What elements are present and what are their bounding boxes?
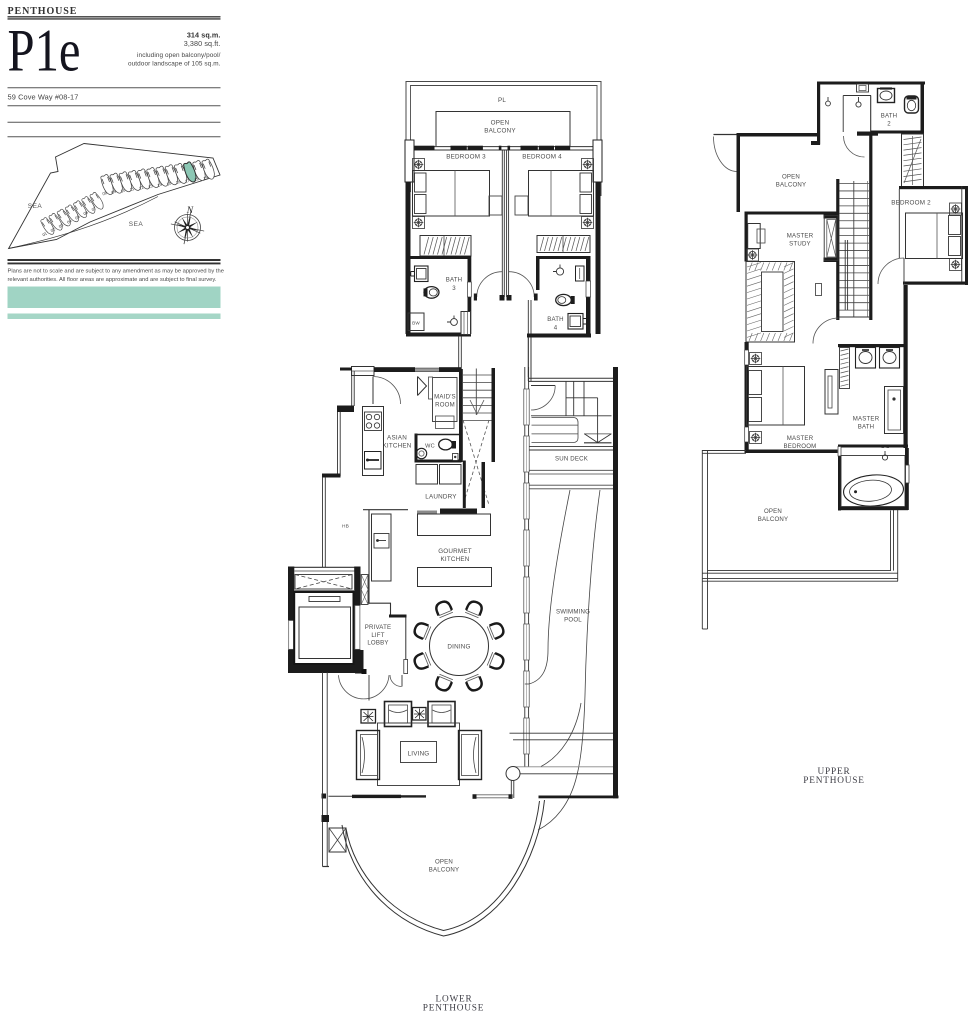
svg-text:ASIAN: ASIAN (387, 435, 407, 442)
svg-text:GOURMET: GOURMET (438, 548, 472, 555)
svg-text:59 Cove Way #08-17: 59 Cove Way #08-17 (8, 93, 79, 102)
svg-text:PENTHOUSE: PENTHOUSE (803, 776, 864, 786)
svg-text:3,380 sq.ft.: 3,380 sq.ft. (184, 39, 221, 48)
svg-text:MASTER: MASTER (853, 416, 880, 423)
svg-text:KITCHEN: KITCHEN (382, 443, 411, 450)
svg-text:OPEN: OPEN (435, 859, 453, 866)
svg-text:LOBBY: LOBBY (367, 640, 388, 647)
svg-text:MASTER: MASTER (787, 435, 814, 442)
svg-text:LAUNDRY: LAUNDRY (425, 494, 457, 501)
svg-text:relevant authorities. All floo: relevant authorities. All floor areas ar… (8, 277, 217, 283)
svg-text:BALCONY: BALCONY (484, 128, 516, 135)
svg-text:BW: BW (412, 321, 420, 326)
svg-text:BATH: BATH (547, 316, 564, 323)
svg-text:BALCONY: BALCONY (758, 516, 789, 523)
svg-text:3: 3 (452, 285, 456, 292)
svg-text:MAID'S: MAID'S (434, 394, 456, 401)
svg-text:POOL: POOL (564, 617, 582, 624)
svg-text:PENTHOUSE: PENTHOUSE (8, 6, 78, 17)
svg-text:OPEN: OPEN (491, 120, 510, 127)
svg-text:outdoor landscape of 105 sq.m.: outdoor landscape of 105 sq.m. (128, 60, 221, 67)
svg-text:N: N (186, 206, 194, 216)
svg-text:including open balcony/pool/: including open balcony/pool/ (137, 52, 221, 59)
svg-text:LIVING: LIVING (408, 751, 430, 758)
svg-text:BEDROOM 4: BEDROOM 4 (522, 154, 562, 161)
svg-text:BATH: BATH (446, 277, 463, 284)
svg-text:OPEN: OPEN (764, 508, 782, 515)
svg-text:Plans are not to scale and are: Plans are not to scale and are subject t… (8, 269, 224, 275)
svg-text:BEDROOM: BEDROOM (784, 443, 817, 450)
svg-text:SWIMMING: SWIMMING (556, 609, 590, 616)
svg-text:BALCONY: BALCONY (776, 182, 807, 189)
svg-text:WC: WC (425, 444, 435, 450)
svg-text:BATH: BATH (858, 424, 875, 431)
svg-text:PL: PL (498, 97, 506, 104)
svg-text:LIFT: LIFT (371, 632, 384, 639)
svg-text:4: 4 (554, 325, 558, 332)
svg-text:BEDROOM 2: BEDROOM 2 (891, 200, 931, 207)
svg-text:BATH: BATH (881, 113, 898, 120)
svg-text:PENTHOUSE: PENTHOUSE (423, 1004, 484, 1013)
svg-text:KITCHEN: KITCHEN (440, 556, 469, 563)
svg-text:MASTER: MASTER (787, 233, 814, 240)
svg-text:ROOM: ROOM (435, 402, 455, 409)
svg-text:2: 2 (887, 121, 891, 128)
svg-text:SUN DECK: SUN DECK (555, 456, 588, 463)
svg-text:BEDROOM 3: BEDROOM 3 (446, 154, 486, 161)
svg-text:STUDY: STUDY (789, 241, 811, 248)
svg-text:HB: HB (342, 524, 349, 530)
svg-text:OPEN: OPEN (782, 174, 800, 181)
svg-text:DINING: DINING (447, 644, 470, 651)
svg-text:PRIVATE: PRIVATE (365, 624, 392, 631)
svg-text:SEA: SEA (28, 203, 43, 210)
svg-text:BALCONY: BALCONY (429, 867, 460, 874)
svg-text:P1e: P1e (8, 18, 81, 84)
svg-text:SEA: SEA (129, 221, 144, 228)
